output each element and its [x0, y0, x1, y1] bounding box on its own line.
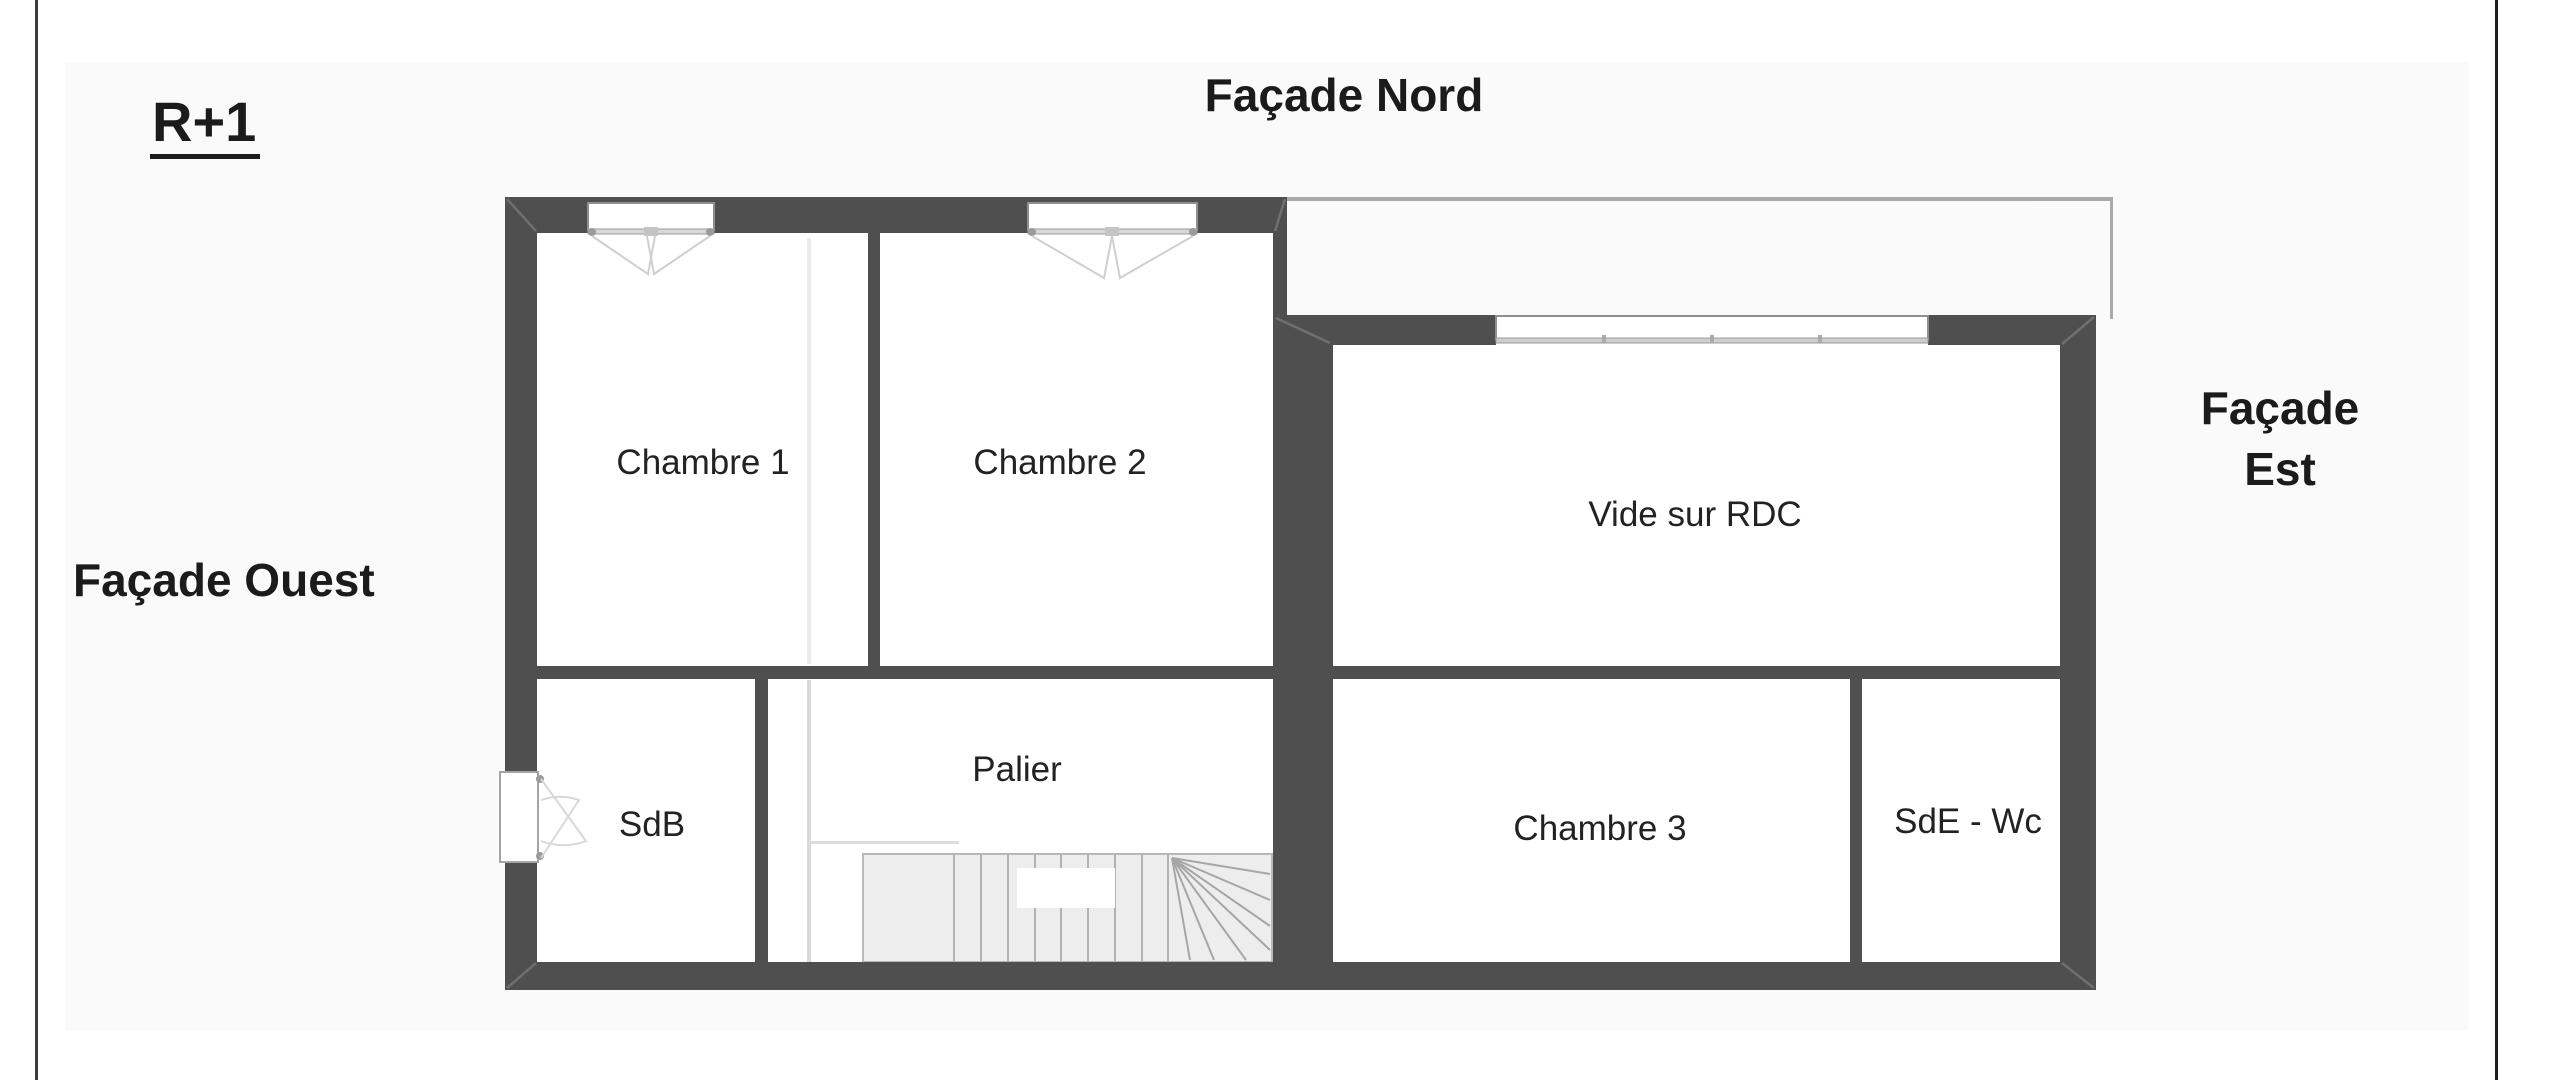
partition-chambre1-chambre2 [868, 233, 880, 668]
window-vide [1496, 316, 1928, 343]
room-label-sde-wc: SdE - Wc [1880, 796, 2056, 848]
facade-east-label: Façade Est [2201, 378, 2360, 499]
staircase [863, 854, 1272, 962]
chambre2-east-wall [1273, 233, 1287, 315]
floor-plan-drawing [0, 0, 2554, 1080]
interior-wall-east [1333, 666, 2060, 679]
room-label-chambre2: Chambre 2 [959, 437, 1160, 489]
east-wall [2060, 315, 2096, 990]
room-label-chambre3: Chambre 3 [1499, 803, 1700, 855]
partition-sdb-palier [755, 679, 768, 962]
room-label-palier: Palier [958, 744, 1075, 796]
facade-alignment-lines [1287, 197, 2113, 319]
vide-north-wall-right [1928, 315, 2096, 345]
room-label-sdb: SdB [605, 799, 699, 851]
floor-plan-page: R+1 Façade Nord Façade Ouest Façade Est … [0, 0, 2554, 1080]
facade-north-label: Façade Nord [1205, 68, 1484, 122]
room-label-vide-sur-rdc: Vide sur RDC [1574, 489, 1815, 541]
room-label-chambre1: Chambre 1 [602, 437, 803, 489]
central-column-wall [1273, 315, 1333, 962]
interior-wall-west [537, 666, 1273, 679]
west-wall [505, 197, 537, 990]
floor-level-label: R+1 [150, 94, 260, 159]
facade-east-line1: Façade [2201, 378, 2360, 439]
south-wall [505, 962, 2096, 990]
facade-east-line2: Est [2201, 439, 2360, 500]
facade-west-label: Façade Ouest [73, 553, 375, 607]
partition-chambre3-sde [1850, 679, 1862, 962]
